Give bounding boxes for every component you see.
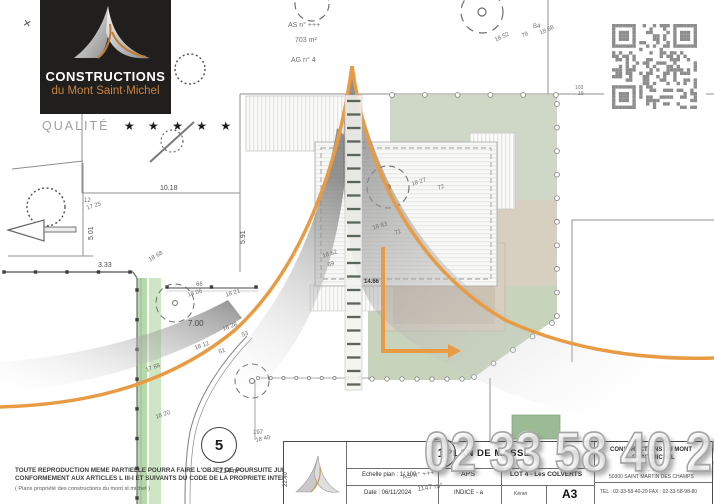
retaining-wall-symbol — [345, 95, 362, 390]
scale-field: Echelle plan : 1/ 100 — [362, 472, 416, 478]
logo-text-bottom: du Mont Saint·Michel — [40, 85, 171, 97]
title-block-logo-icon — [290, 450, 342, 496]
qr-code — [604, 16, 706, 118]
quality-label: QUALITÉ — [42, 119, 110, 133]
legal-line-1: TOUTE REPRODUCTION MEME PARTIELLE POURRA… — [15, 467, 319, 475]
legal-line-2: CONFORMEMENT AUX ARTICLES L III-I ET SUI… — [15, 475, 319, 483]
logo-text-top: CONSTRUCTIONS — [40, 69, 171, 84]
site-plan-page: CONSTRUCTIONS du Mont Saint·Michel QUALI… — [0, 0, 714, 504]
quality-rating: QUALITÉ ★ ★ ★ ★ ★ — [42, 117, 236, 135]
company-tel-fax: TEL : 02-33-58-40-29 FAX : 02-33-58-98-8… — [600, 489, 697, 495]
circled-mark-5: 5 — [201, 427, 237, 463]
logo-emblem-icon — [40, 0, 171, 62]
company-logo: CONSTRUCTIONS du Mont Saint·Michel — [40, 0, 171, 114]
author-field: Kéran — [514, 491, 527, 497]
legal-line-3: ( Plans propriété des constructions du m… — [15, 486, 319, 492]
legal-notice: TOUTE REPRODUCTION MEME PARTIELLE POURRA… — [15, 467, 319, 492]
indice-field: INDICE - a — [454, 490, 483, 496]
quality-stars-icon: ★ ★ ★ ★ ★ — [124, 119, 236, 133]
north-arrow-icon — [8, 220, 76, 241]
phone-watermark: 02 33 58 40 29 — [424, 419, 714, 484]
paper-format: A3 — [562, 487, 577, 501]
date-field: Date : 06/11/2024 — [364, 490, 411, 496]
